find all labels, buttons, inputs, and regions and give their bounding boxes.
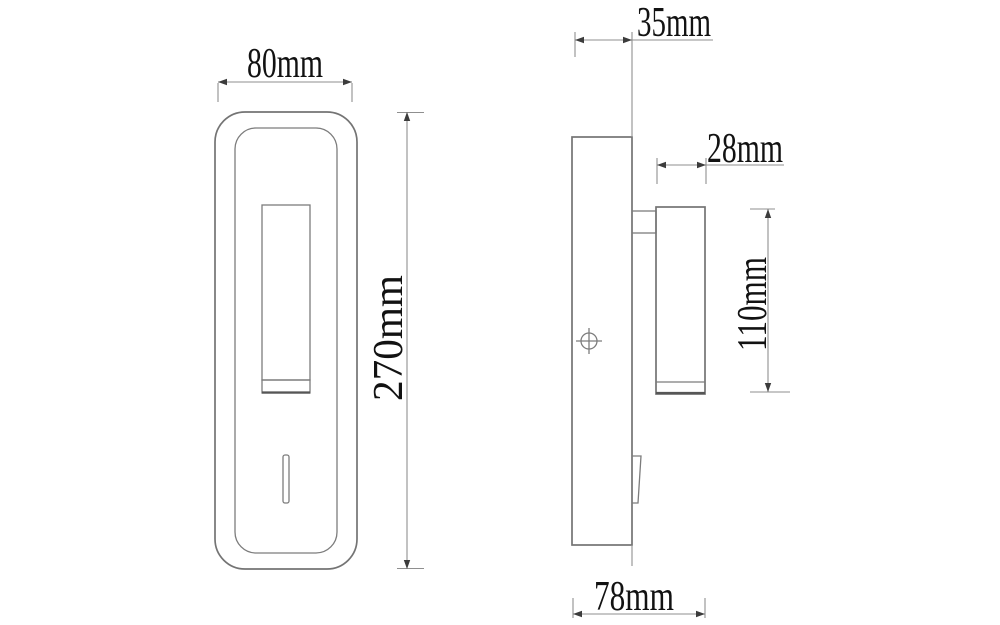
arrow-left-icon xyxy=(573,611,582,617)
side-lamp-head-cylinder-outline xyxy=(656,207,705,394)
front-outer-body-outline xyxy=(215,112,357,569)
front-view xyxy=(215,112,357,569)
front-inner-frame-outline xyxy=(235,128,337,553)
dim-front-height-label: 270mm xyxy=(366,275,412,401)
dim-head-length: 110mm xyxy=(730,209,790,392)
dim-front-height: 270mm xyxy=(366,112,424,569)
dim-head-diameter-witness-lines xyxy=(657,158,706,184)
screw-hole-cross xyxy=(576,328,602,354)
arrow-right-icon xyxy=(343,79,352,85)
dim-head-diameter: 28mm xyxy=(657,126,784,184)
arrow-left-icon xyxy=(657,162,666,168)
dim-plate-depth: 35mm xyxy=(575,0,713,137)
arrow-up-icon xyxy=(404,112,410,121)
arrow-right-icon xyxy=(696,611,705,617)
front-lamp-panel-outline xyxy=(262,205,310,380)
dim-front-width-label: 80mm xyxy=(247,41,323,87)
dim-plate-depth-witness-lines xyxy=(575,32,632,137)
screw-hole-crosshair-icon xyxy=(576,328,602,354)
front-switch-slot xyxy=(283,455,289,503)
arrow-down-icon xyxy=(765,383,771,392)
wall-lamp-drawing-svg: 80mm 270mm 35mm xyxy=(0,0,1000,625)
dim-plate-depth-label: 35mm xyxy=(637,0,711,46)
arrow-right-icon xyxy=(697,162,706,168)
arrow-down-icon xyxy=(404,560,410,569)
arrow-up-icon xyxy=(765,209,771,218)
dim-overall-depth-label: 78mm xyxy=(594,574,674,620)
arrow-right-icon xyxy=(623,37,632,43)
front-panel-diffuser-band xyxy=(262,380,310,393)
dim-head-diameter-label: 28mm xyxy=(707,126,783,172)
dim-front-width: 80mm xyxy=(218,41,352,102)
side-mounting-arm-outline xyxy=(632,211,656,233)
technical-drawing-canvas: 80mm 270mm 35mm xyxy=(0,0,1000,625)
dim-head-length-label: 110mm xyxy=(730,257,776,351)
side-switch-toggle-outline xyxy=(632,456,641,503)
arrow-left-icon xyxy=(218,79,227,85)
arrow-left-icon xyxy=(575,37,584,43)
side-view xyxy=(572,137,705,566)
dim-overall-depth: 78mm xyxy=(573,574,705,620)
